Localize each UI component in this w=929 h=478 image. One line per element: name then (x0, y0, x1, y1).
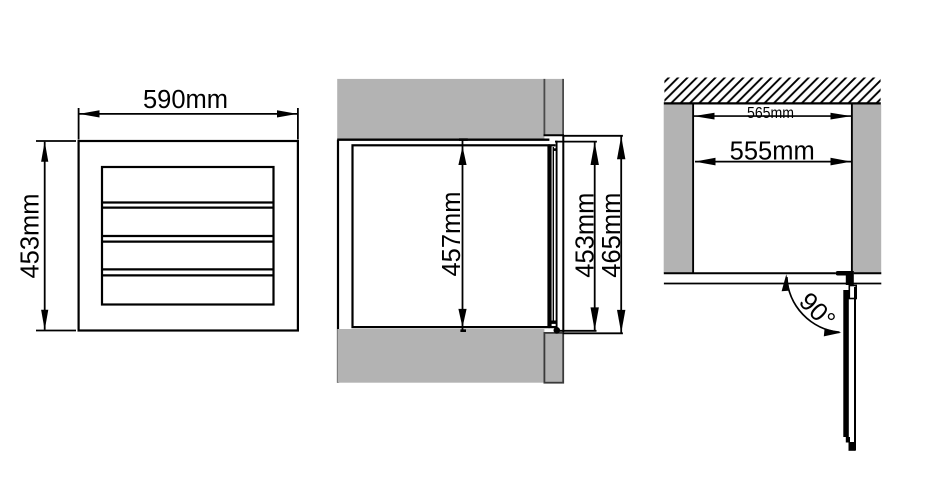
svg-text:90°: 90° (793, 287, 840, 334)
svg-text:565mm: 565mm (747, 105, 794, 122)
svg-text:453mm: 453mm (17, 193, 45, 278)
svg-text:453mm: 453mm (572, 193, 600, 278)
svg-text:457mm: 457mm (438, 191, 466, 276)
svg-text:590mm: 590mm (143, 86, 228, 114)
svg-text:465mm: 465mm (598, 193, 626, 278)
svg-text:555mm: 555mm (730, 138, 815, 166)
